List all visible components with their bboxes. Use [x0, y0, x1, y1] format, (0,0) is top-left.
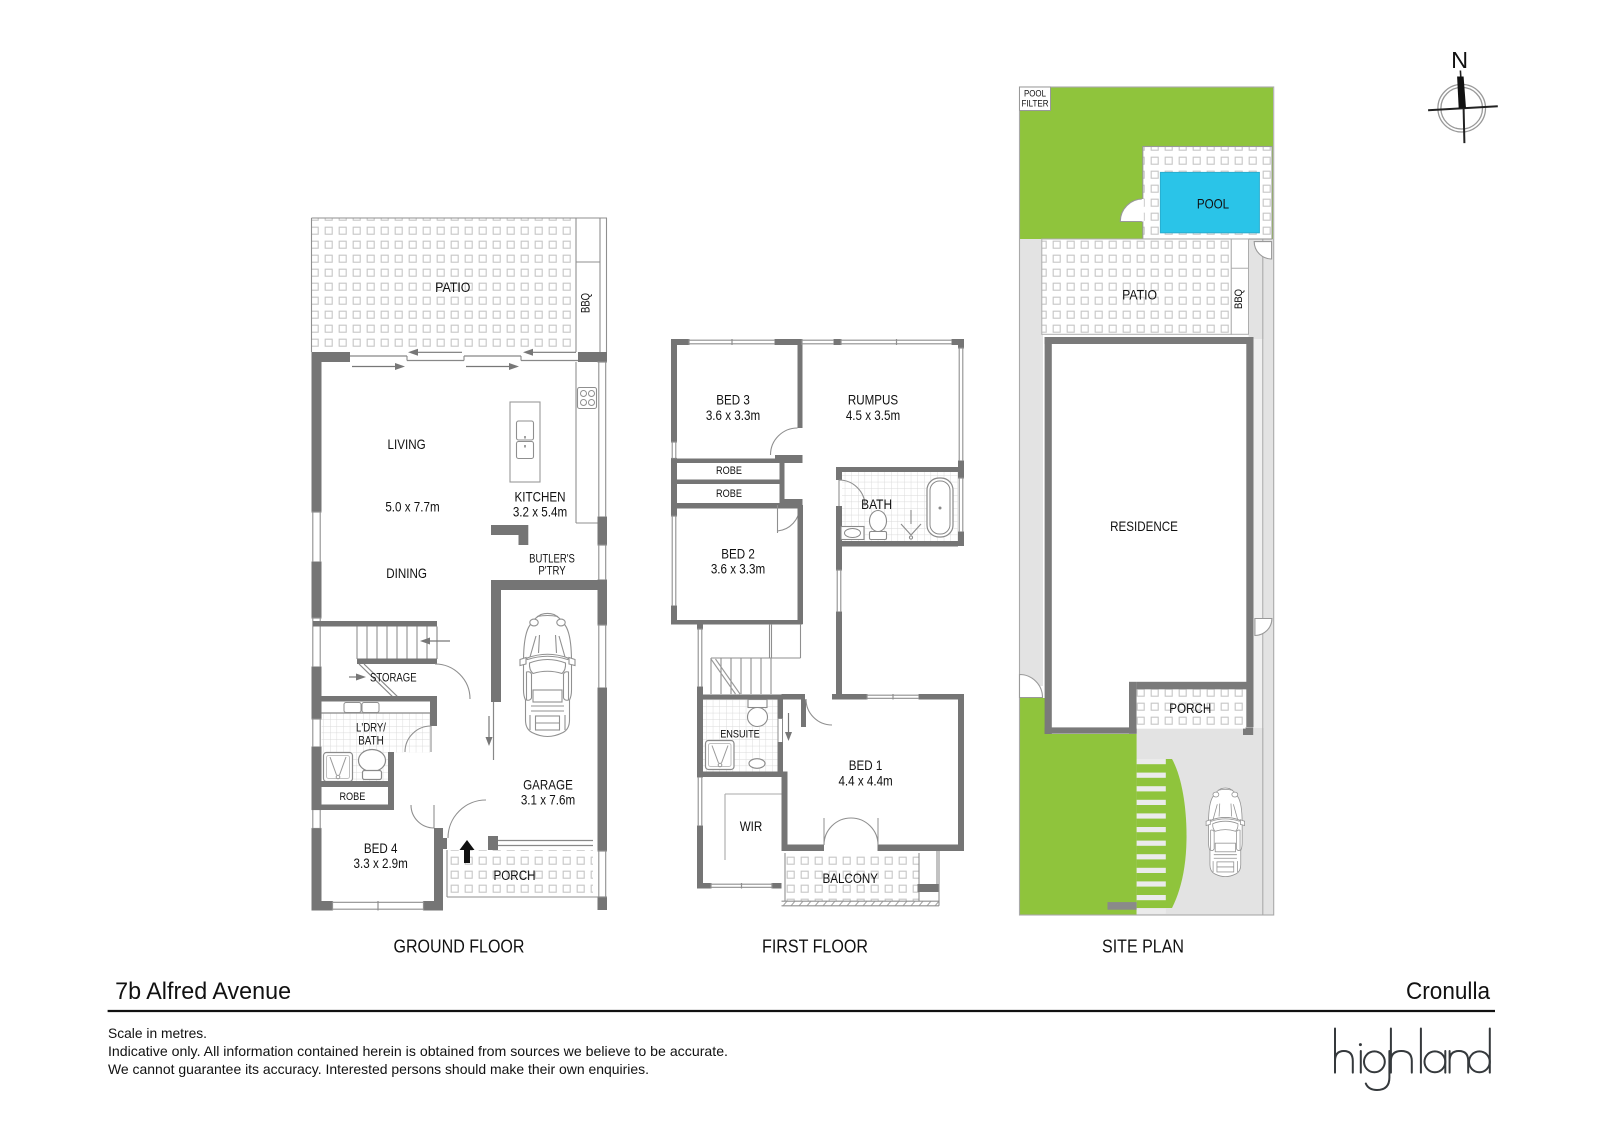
svg-text:4.4 x 4.4m: 4.4 x 4.4m [838, 772, 892, 788]
svg-text:ROBE: ROBE [339, 791, 365, 803]
svg-text:FIRST FLOOR: FIRST FLOOR [762, 935, 868, 956]
svg-text:GARAGE: GARAGE [523, 777, 573, 793]
svg-text:P'TRY: P'TRY [538, 566, 566, 578]
svg-text:BED 2: BED 2 [721, 545, 755, 561]
svg-text:FILTER: FILTER [1022, 99, 1049, 109]
svg-text:STORAGE: STORAGE [370, 673, 417, 685]
svg-text:PATIO: PATIO [435, 279, 470, 295]
svg-text:ROBE: ROBE [716, 465, 742, 477]
svg-text:3.2 x 5.4m: 3.2 x 5.4m [513, 504, 567, 520]
svg-text:BALCONY: BALCONY [823, 870, 879, 886]
svg-text:ROBE: ROBE [716, 488, 742, 500]
svg-text:BBQ: BBQ [1233, 289, 1245, 309]
svg-text:PORCH: PORCH [494, 867, 536, 883]
svg-text:BBQ: BBQ [581, 293, 593, 313]
svg-text:WIR: WIR [740, 818, 763, 834]
svg-text:L'DRY/: L'DRY/ [356, 723, 387, 735]
svg-text:GROUND FLOOR: GROUND FLOOR [394, 935, 525, 956]
svg-text:KITCHEN: KITCHEN [515, 489, 566, 505]
svg-text:N: N [1451, 47, 1468, 73]
svg-text:We cannot guarantee its accura: We cannot guarantee its accuracy. Intere… [108, 1062, 649, 1077]
svg-text:Scale in metres.: Scale in metres. [108, 1026, 207, 1041]
svg-text:BED 3: BED 3 [716, 391, 750, 407]
svg-text:PORCH: PORCH [1169, 700, 1211, 716]
svg-text:Indicative only. All informati: Indicative only. All information contain… [108, 1044, 728, 1059]
svg-text:5.0 x 7.7m: 5.0 x 7.7m [385, 499, 439, 515]
svg-text:3.6 x 3.3m: 3.6 x 3.3m [711, 560, 765, 576]
svg-text:3.3 x 2.9m: 3.3 x 2.9m [354, 855, 408, 871]
svg-text:BUTLER'S: BUTLER'S [529, 554, 575, 566]
svg-text:3.1 x 7.6m: 3.1 x 7.6m [521, 792, 575, 808]
svg-text:DINING: DINING [386, 565, 427, 581]
svg-text:BED 4: BED 4 [364, 840, 398, 856]
svg-text:ENSUITE: ENSUITE [720, 729, 760, 741]
svg-text:SITE PLAN: SITE PLAN [1102, 935, 1184, 956]
svg-text:POOL: POOL [1024, 89, 1046, 99]
svg-text:LIVING: LIVING [388, 436, 426, 452]
svg-text:RUMPUS: RUMPUS [848, 391, 898, 407]
svg-text:RESIDENCE: RESIDENCE [1110, 518, 1178, 534]
svg-text:BATH: BATH [358, 736, 384, 748]
svg-text:7b Alfred Avenue: 7b Alfred Avenue [115, 978, 291, 1005]
svg-text:POOL: POOL [1197, 196, 1229, 212]
svg-text:BATH: BATH [861, 496, 892, 512]
svg-text:BED 1: BED 1 [849, 757, 883, 773]
svg-text:Cronulla: Cronulla [1406, 978, 1490, 1005]
svg-text:PATIO: PATIO [1122, 287, 1157, 303]
svg-text:4.5 x 3.5m: 4.5 x 3.5m [846, 407, 900, 423]
svg-text:3.6 x 3.3m: 3.6 x 3.3m [706, 407, 760, 423]
